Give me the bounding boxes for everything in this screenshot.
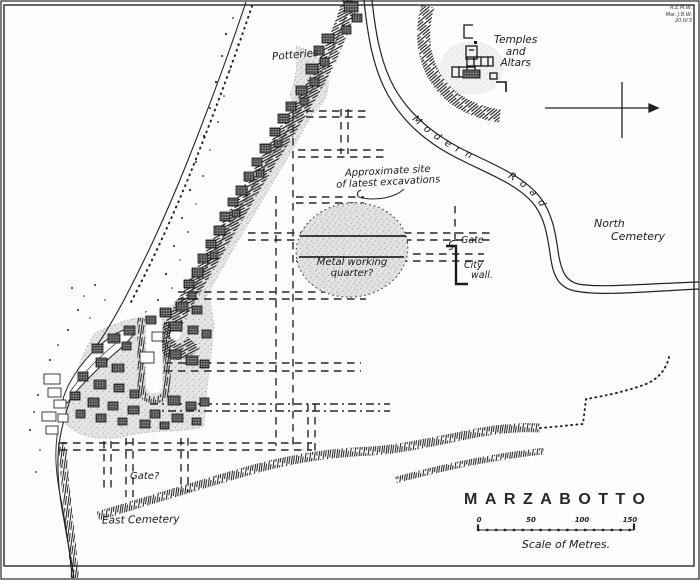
gate-arrow [449,240,459,249]
scale-tick-150: 150 [623,516,638,524]
scale-tick-100: 100 [575,516,590,524]
north-cemetery-label: North Cemetery [594,217,665,243]
metal-working-label: Metal working quarter? [317,257,387,279]
scale-caption: Scale of Metres. [522,539,610,550]
temples-line3: Altars [494,58,537,70]
surveyor-signature: R.E.M.W. Mar. J.B.W. 20.IV.5 [666,5,692,25]
river-shoreline [56,2,252,578]
marzabotto-map: Modern Road Potteries Temples and Altars… [0,0,700,580]
scale-tick-0: 0 [477,516,482,524]
east-cemetery-label: East Cemetery [102,514,180,526]
gate-south-label: Gate? [130,471,159,482]
excavation-zones [64,41,504,439]
city-wall-label: City wall. [464,261,493,281]
temples-altars-label: Temples and Altars [494,35,537,70]
scale-tick-50: 50 [526,516,536,524]
gate-north-label: Gate [461,235,484,246]
metal-quarter-blob [290,196,414,305]
approx-site-arrow [357,189,404,199]
compass-north-icon [545,82,658,138]
map-title: MARZABOTTO [464,491,652,509]
scale-bar [478,524,634,531]
ridge-dotted-line [540,357,669,428]
temples-line1: Temples [494,34,537,46]
